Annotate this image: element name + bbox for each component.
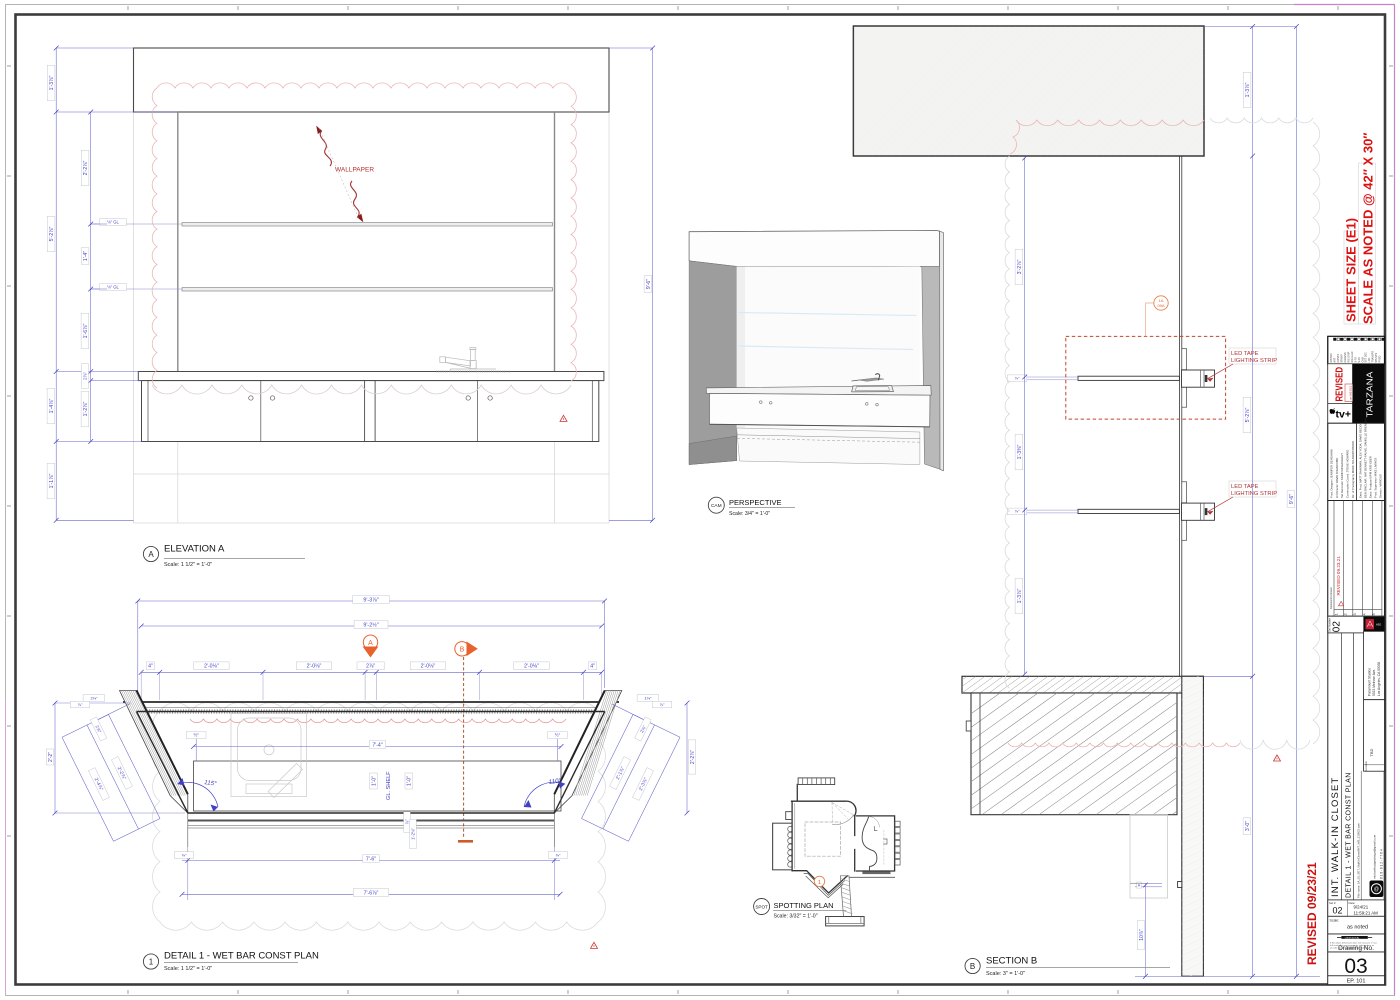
svg-text:5: 5 <box>1372 613 1376 615</box>
svg-text:2'-0⅛": 2'-0⅛" <box>524 664 539 670</box>
svg-text:9'-3⅞": 9'-3⅞" <box>363 597 378 603</box>
svg-text:1⅛": 1⅛" <box>645 695 653 700</box>
svg-text:Scale: 3/32" = 1'-0": Scale: 3/32" = 1'-0" <box>774 914 818 920</box>
svg-text:michaelbudgedesign@gmail.com: michaelbudgedesign@gmail.com <box>1373 834 1377 879</box>
svg-text:1'-3⅞": 1'-3⅞" <box>1017 589 1023 604</box>
svg-text:⅞": ⅞" <box>660 702 665 707</box>
svg-text:SHEET SIZE (E1): SHEET SIZE (E1) <box>1344 218 1359 322</box>
svg-text:9'-6": 9'-6" <box>646 279 652 289</box>
svg-text:1'-2⅞": 1'-2⅞" <box>83 402 89 417</box>
svg-text:1'-6⅞": 1'-6⅞" <box>83 324 89 339</box>
svg-text:3: 3 <box>1353 613 1357 615</box>
svg-text:SPOT: SPOT <box>755 905 768 910</box>
svg-text:9'-2½": 9'-2½" <box>363 621 378 628</box>
svg-text:5'-2⅞": 5'-2⅞" <box>49 227 55 242</box>
svg-text:SCALE AS NOTED @ 42″ X 30″: SCALE AS NOTED @ 42″ X 30″ <box>1361 132 1376 324</box>
svg-text:2'-0⅛": 2'-0⅛" <box>204 664 219 670</box>
svg-text:Set #: Set # <box>1329 901 1336 905</box>
svg-text:02: 02 <box>1331 621 1342 633</box>
svg-text:2⅞": 2⅞" <box>366 664 375 670</box>
svg-text:REVISED 09/23/21: REVISED 09/23/21 <box>1305 862 1319 965</box>
svg-text:2: 2 <box>1344 613 1348 615</box>
svg-text:2'-2": 2'-2" <box>48 752 54 762</box>
svg-text:CAM: CAM <box>711 503 722 509</box>
svg-text:1'-3⅞": 1'-3⅞" <box>49 76 55 91</box>
svg-text:02: 02 <box>1333 906 1343 916</box>
svg-text:7'-6": 7'-6" <box>366 857 376 863</box>
svg-text:Paramount Studios: Paramount Studios <box>1367 668 1371 696</box>
svg-text:as noted: as noted <box>1347 925 1368 931</box>
svg-text:2'-2⅞": 2'-2⅞" <box>83 161 89 176</box>
svg-text:INT. WALK-IN CLOSET: INT. WALK-IN CLOSET <box>1330 777 1341 897</box>
svg-text:TARZANA: TARZANA <box>1365 371 1375 417</box>
svg-text:5515 Melrose Ave.: 5515 Melrose Ave. <box>1372 669 1376 696</box>
svg-text:1'-4⅞": 1'-4⅞" <box>49 399 55 414</box>
svg-text:Drawing No.: Drawing No. <box>1338 945 1374 952</box>
svg-text:03: 03 <box>1344 955 1367 978</box>
svg-text:11:59:21 AM: 11:59:21 AM <box>1354 911 1379 916</box>
svg-text:4": 4" <box>148 664 153 670</box>
svg-text:Set Decorator KARIN McGAUGHE: Set Decorator KARIN McGAUGHEY <box>1340 453 1344 498</box>
svg-text:DETAIL 1 - WET BAR CONST PLAN: DETAIL 1 - WET BAR CONST PLAN <box>164 951 319 962</box>
svg-text:Scale:: Scale: <box>1330 919 1340 923</box>
svg-text:4": 4" <box>590 664 595 670</box>
svg-text:1'-0": 1'-0" <box>407 776 413 786</box>
svg-text:Prod. Designer JENNIFER DEHG: Prod. Designer JENNIFER DEHGHANI <box>1330 449 1334 498</box>
svg-text:09A: 09A <box>1157 303 1164 308</box>
svg-text:½": ½" <box>193 732 199 738</box>
svg-text:3'-0": 3'-0" <box>1245 821 1251 831</box>
svg-text:1'-4": 1'-4" <box>83 251 89 261</box>
svg-text:Scale: 3" = 1'-0": Scale: 3" = 1'-0" <box>986 971 1025 977</box>
svg-text:Construction Coord. STEVE HO: Construction Coord. STEVE HOWARD <box>1346 450 1350 498</box>
svg-text:5'-2⅞": 5'-2⅞" <box>1245 408 1251 423</box>
svg-text:B: B <box>970 962 975 971</box>
svg-text:2'-0⅛": 2'-0⅛" <box>421 664 436 670</box>
svg-text:8 1 8 - 6 1 2 - 7 7 6 4: 8 1 8 - 6 1 2 - 7 7 6 4 <box>1379 849 1383 879</box>
svg-text:⅛" GL: ⅛" GL <box>107 285 119 290</box>
svg-text:Director: VARIOUS: Director: VARIOUS <box>1379 474 1383 498</box>
svg-text:2⅛": 2⅛" <box>91 695 99 700</box>
svg-text:ELEVATION A: ELEVATION A <box>164 544 225 555</box>
svg-text:File name: 1A_02_SET_WalkInCl: File name: 1A_02_SET_WalkInCloset/INT_WB… <box>1356 823 1360 898</box>
svg-text:PERSPECTIVE: PERSPECTIVE <box>729 498 782 507</box>
svg-text:SPOTTING PLAN: SPOTTING PLAN <box>774 901 834 910</box>
svg-text:⅞": ⅞" <box>78 702 83 707</box>
svg-text:⅞": ⅞" <box>1015 509 1020 514</box>
svg-text:1'-1⅞": 1'-1⅞" <box>49 474 55 489</box>
svg-text:2'-2⅞": 2'-2⅞" <box>690 750 696 764</box>
svg-text:7'-6⅞": 7'-6⅞" <box>364 890 379 896</box>
svg-text:2⅞": 2⅞" <box>83 372 88 380</box>
svg-text:SECTION B: SECTION B <box>986 956 1037 967</box>
svg-text:3'-2⅞": 3'-2⅞" <box>1017 260 1023 275</box>
svg-text:1'-3⅜": 1'-3⅜" <box>1017 445 1023 460</box>
svg-text:Art Director DAVID DIGIACOMO: Art Director DAVID DIGIACOMO <box>1335 457 1339 498</box>
svg-text:@: @ <box>1374 887 1379 893</box>
svg-text:⅛" GL: ⅛" GL <box>107 220 119 225</box>
svg-text:1'-2⅛": 1'-2⅛" <box>411 828 416 840</box>
svg-text:9/24/21: 9/24/21 <box>1354 905 1369 910</box>
svg-text:LIGHTING STRIP: LIGHTING STRIP <box>1231 358 1277 364</box>
svg-text:⅞": ⅞" <box>1015 376 1020 381</box>
svg-text:Los Angeles, CA 90038: Los Angeles, CA 90038 <box>1377 662 1381 696</box>
svg-text:4: 4 <box>1363 613 1367 615</box>
svg-text:Exec. Producer/UPM KRIS EBER: Exec. Producer/UPM KRIS EBER <box>1369 456 1373 498</box>
svg-text:TBD: TBD <box>1369 748 1374 756</box>
svg-text:B: B <box>460 646 465 653</box>
svg-text:10⅞": 10⅞" <box>1139 929 1145 941</box>
svg-text:1: 1 <box>1334 613 1338 615</box>
svg-text:Scale: 3/4" = 1'-0": Scale: 3/4" = 1'-0" <box>729 511 770 517</box>
svg-text:REVISED: REVISED <box>1334 367 1346 402</box>
svg-text:WALLPAPER: WALLPAPER <box>335 167 374 174</box>
svg-text:7'-4": 7'-4" <box>372 742 382 748</box>
svg-text:EP. 101: EP. 101 <box>1347 979 1366 985</box>
svg-text:Revision/Comment: Revision/Comment <box>1329 587 1333 609</box>
svg-text:tv+: tv+ <box>1336 409 1351 421</box>
svg-text:REVISED 09.23.21: REVISED 09.23.21 <box>1336 556 1341 596</box>
svg-text:½": ½" <box>555 732 561 738</box>
svg-text:Prod. Supervisor MIKE LIVING: Prod. Supervisor MIKE LIVINGS <box>1374 458 1378 498</box>
svg-text:1: 1 <box>818 880 821 886</box>
svg-text:9'-6": 9'-6" <box>1289 494 1295 504</box>
svg-text:1'-0": 1'-0" <box>371 776 377 786</box>
svg-text:DETAIL 1 - WET BAR CONST PLA: DETAIL 1 - WET BAR CONST PLAN <box>1346 772 1353 898</box>
svg-text:1: 1 <box>149 958 154 967</box>
svg-text:Exec. Prod. MATT SHAKMAN, AL: Exec. Prod. MATT SHAKMAN, ALEX YODA, DAV… <box>1359 423 1363 498</box>
svg-text:Location: Location <box>1364 760 1368 770</box>
svg-text:BEN SINCLAIR, NAT BENNETT-FAUV: BEN SINCLAIR, NAT BENNETT-FAUVE, DANIELL… <box>1364 418 1368 498</box>
svg-text:Dir. of Photography MARK SCH: Dir. of Photography MARK SCHWARTZBARD <box>1351 441 1355 498</box>
svg-text:⅜": ⅜" <box>556 852 561 857</box>
svg-text:Scale: 1 1/2" = 1'-0": Scale: 1 1/2" = 1'-0" <box>164 562 212 568</box>
svg-text:1'-3⅞": 1'-3⅞" <box>1245 83 1251 98</box>
svg-text:Scale: 1 1/2" = 1'-0": Scale: 1 1/2" = 1'-0" <box>164 966 212 972</box>
svg-text:2'-0⅛": 2'-0⅛" <box>307 664 322 670</box>
svg-text:LED TAPE: LED TAPE <box>1231 484 1259 490</box>
svg-text:A: A <box>148 550 154 559</box>
svg-text:HSG: HSG <box>1376 624 1381 627</box>
svg-text:on 9/23/21: on 9/23/21 <box>1349 385 1353 400</box>
svg-text:LED TAPE: LED TAPE <box>1231 351 1259 357</box>
svg-text:LIGHTING STRIP: LIGHTING STRIP <box>1231 491 1277 497</box>
svg-text:PROD: PROD <box>1379 355 1382 362</box>
svg-text:⅜": ⅜" <box>182 852 187 857</box>
svg-text:1 INCH ACTUAL: 1 INCH ACTUAL <box>1345 936 1361 939</box>
svg-text:⅞": ⅞" <box>405 819 410 824</box>
svg-text:A: A <box>368 640 373 647</box>
svg-text:GL. SHELF: GL. SHELF <box>386 771 392 800</box>
